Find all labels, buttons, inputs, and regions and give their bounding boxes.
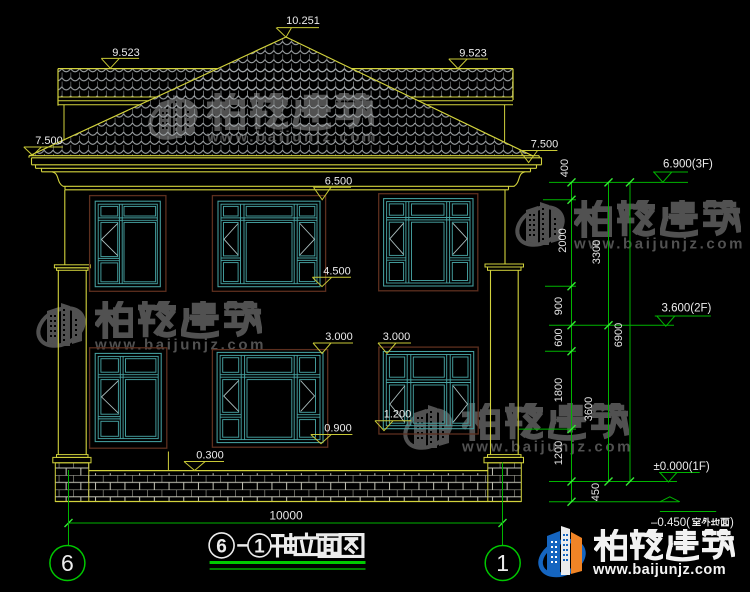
svg-text:3600: 3600 [583, 397, 595, 421]
svg-text:1: 1 [496, 550, 509, 576]
svg-text:6: 6 [61, 550, 74, 576]
svg-text:2000: 2000 [557, 228, 569, 252]
svg-text:1800: 1800 [553, 378, 565, 402]
svg-text:–0.450(: –0.450( [651, 517, 690, 529]
svg-text:3.600(2F): 3.600(2F) [662, 303, 712, 315]
svg-text:0.900: 0.900 [324, 423, 352, 435]
svg-text:400: 400 [559, 159, 571, 177]
svg-text:450: 450 [590, 483, 602, 501]
svg-text:900: 900 [553, 297, 565, 315]
svg-text:3300: 3300 [591, 240, 603, 264]
svg-text:6900: 6900 [613, 323, 625, 347]
svg-text:www.baijunjz.com: www.baijunjz.com [592, 562, 726, 578]
svg-text:1200: 1200 [553, 441, 565, 465]
svg-text:6.900(3F): 6.900(3F) [663, 159, 713, 171]
svg-text:1.200: 1.200 [384, 409, 412, 421]
svg-text:9.523: 9.523 [112, 47, 140, 59]
svg-text:): ) [730, 517, 734, 529]
svg-text:6.500: 6.500 [325, 176, 353, 188]
svg-text:±0.000(1F): ±0.000(1F) [654, 461, 710, 473]
svg-text:9.523: 9.523 [459, 48, 487, 60]
svg-text:7.500: 7.500 [35, 135, 63, 147]
svg-text:1: 1 [254, 537, 265, 558]
svg-text:4.500: 4.500 [323, 266, 351, 278]
svg-text:3.000: 3.000 [325, 331, 353, 343]
svg-text:0.300: 0.300 [196, 450, 224, 462]
svg-text:10.251: 10.251 [286, 15, 320, 27]
svg-text:3.000: 3.000 [383, 331, 411, 343]
svg-text:7.500: 7.500 [531, 139, 559, 151]
svg-text:600: 600 [553, 328, 565, 346]
svg-text:6: 6 [216, 537, 227, 558]
svg-text:10000: 10000 [269, 509, 303, 523]
